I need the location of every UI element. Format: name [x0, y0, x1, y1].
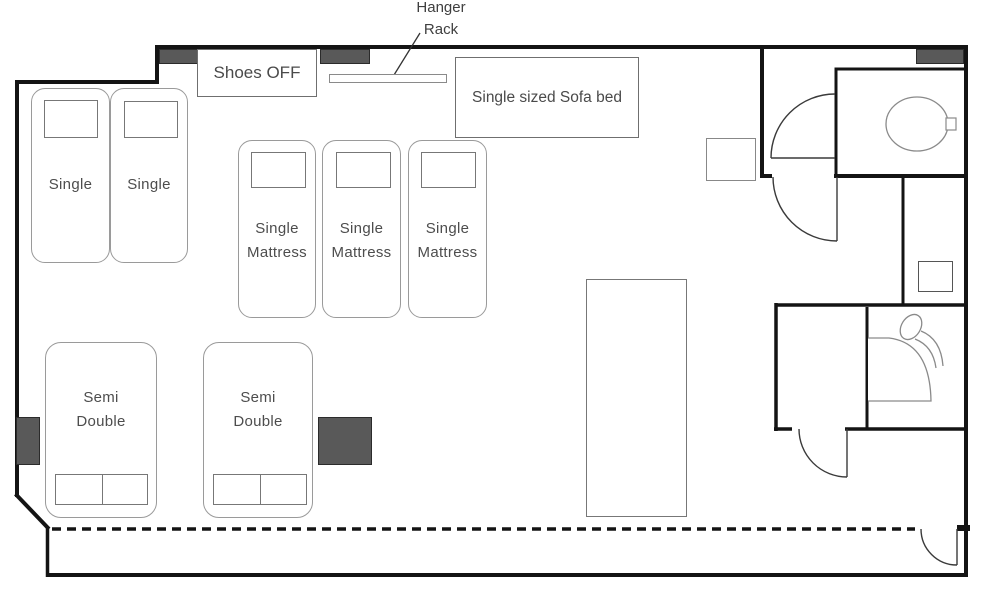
bed-label-line1: Semi — [204, 386, 312, 410]
pillow-pair — [213, 474, 307, 505]
shoes-off-label: Shoes OFF — [214, 63, 301, 83]
bed-semi-double-1: Semi Double — [45, 342, 157, 518]
bed-label-line2: Double — [46, 410, 156, 434]
bed-label-line1: Single — [409, 217, 486, 241]
bed-label: Single Mattress — [409, 217, 486, 265]
pillow — [251, 152, 306, 188]
table — [586, 279, 687, 517]
bed-label: Single Mattress — [239, 217, 315, 265]
dark-block-left-wall — [16, 417, 40, 465]
balcony-door-swing-arc — [921, 529, 957, 565]
toilet-tank-icon — [946, 118, 956, 130]
floor-plan: Shoes OFF Hanger Rack Single sized Sofa … — [0, 0, 1000, 595]
bed-label: Single — [32, 173, 109, 197]
wall-diagonal — [16, 494, 50, 529]
bed-semi-double-2: Semi Double — [203, 342, 313, 518]
hanger-rack-label-line2: Rack — [403, 19, 479, 41]
bed-label: Semi Double — [46, 386, 156, 434]
pillow-divider — [260, 475, 261, 504]
bed-label-line1: Semi — [46, 386, 156, 410]
shower-head-icon — [896, 311, 926, 344]
entrance-door-swing-arc — [771, 94, 835, 158]
pillow-divider — [102, 475, 103, 504]
bed-single-2: Single — [110, 88, 188, 263]
bed-single-mattress-2: Single Mattress — [322, 140, 401, 318]
hanger-rack-label: Hanger Rack — [403, 0, 479, 41]
bed-label: Single Mattress — [323, 217, 400, 265]
bed-label-line2: Mattress — [239, 241, 315, 265]
shelf-box-upper — [706, 138, 756, 181]
bed-label: Single — [111, 173, 187, 197]
bed-single-mattress-1: Single Mattress — [238, 140, 316, 318]
pillow-pair — [55, 474, 148, 505]
bed-label-line2: Double — [204, 410, 312, 434]
dark-block-top-right — [916, 49, 964, 64]
bed-label: Semi Double — [204, 386, 312, 434]
dark-block-top-2 — [320, 49, 370, 64]
bed-label-line2: Mattress — [409, 241, 486, 265]
shower-arm-outer-icon — [921, 331, 943, 366]
hall-door-swing-arc — [773, 177, 837, 241]
shelf-box-closet — [918, 261, 953, 292]
pillow — [44, 100, 98, 138]
bed-label-line2: Mattress — [323, 241, 400, 265]
pillow — [336, 152, 391, 188]
bed-single-1: Single — [31, 88, 110, 263]
hanger-rack — [329, 74, 447, 83]
pillow — [124, 101, 178, 138]
sofa-bed-label: Single sized Sofa bed — [472, 89, 622, 107]
shoes-off-area: Shoes OFF — [197, 49, 317, 97]
bed-single-mattress-3: Single Mattress — [408, 140, 487, 318]
bed-label-line1: Single — [239, 217, 315, 241]
hanger-rack-label-line1: Hanger — [403, 0, 479, 19]
shower-door-swing-arc — [799, 429, 847, 477]
toilet-bowl-icon — [886, 97, 948, 151]
dark-block-mid — [318, 417, 372, 465]
sofa-bed: Single sized Sofa bed — [455, 57, 639, 138]
bed-label-line1: Single — [323, 217, 400, 241]
shower-pan-icon — [868, 338, 931, 401]
pillow — [421, 152, 476, 188]
